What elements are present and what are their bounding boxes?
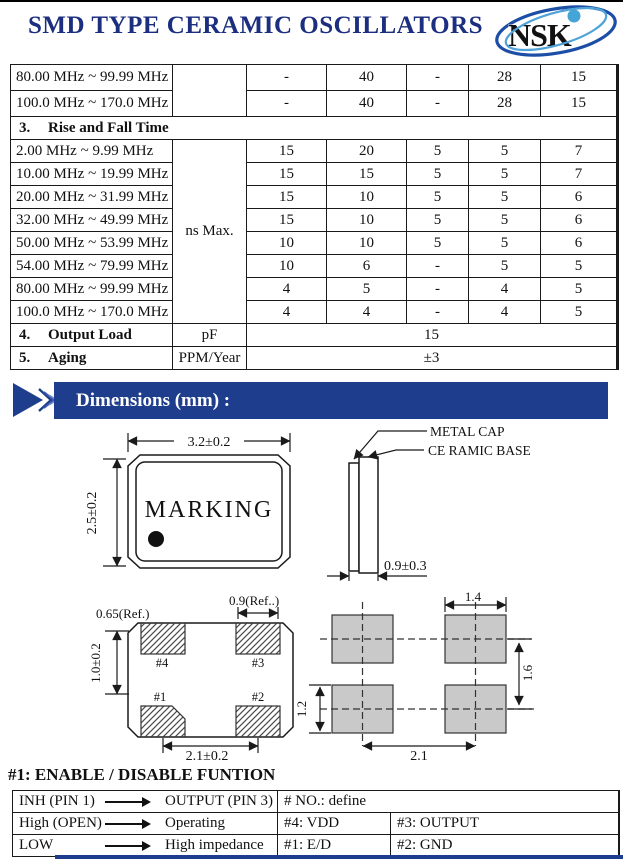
unit-cell-pf: pF bbox=[173, 324, 247, 347]
page-title: SMD TYPE CERAMIC OSCILLATORS bbox=[28, 12, 483, 40]
dim-land-vpitch-label: 1.6 bbox=[520, 664, 535, 681]
value-cell: 5 bbox=[469, 140, 541, 163]
value-cell: 4 bbox=[247, 301, 327, 324]
value-cell: - bbox=[247, 65, 327, 91]
dim-pad-width bbox=[238, 607, 278, 619]
value-cell: 15 bbox=[327, 163, 407, 186]
nsk-logo-text: NSK bbox=[508, 17, 572, 53]
value-cell: 40 bbox=[327, 91, 407, 117]
freq-label: 10.00 MHz ~ 19.99 MHz bbox=[11, 163, 173, 186]
value-cell: 5 bbox=[541, 301, 618, 324]
row-output-load: 4.Output Load bbox=[11, 324, 173, 347]
freq-label: 32.00 MHz ~ 49.99 MHz bbox=[11, 209, 173, 232]
value-cell: 10 bbox=[327, 209, 407, 232]
dim-land-height-label: 1.2 bbox=[294, 701, 309, 717]
value-cell: 5 bbox=[407, 186, 469, 209]
metal-cap-leader bbox=[354, 431, 427, 459]
pad-3 bbox=[236, 623, 280, 654]
freq-label: 50.00 MHz ~ 53.99 MHz bbox=[11, 232, 173, 255]
pad-3-label: #3 bbox=[252, 656, 265, 670]
value-cell: 4 bbox=[327, 301, 407, 324]
value-cell: 15 bbox=[247, 186, 327, 209]
dim-thickness-label: 0.9±0.3 bbox=[384, 559, 427, 574]
value-cell: 5 bbox=[541, 278, 618, 301]
flow-cell: INH (PIN 1) OUTPUT (PIN 3) bbox=[13, 791, 278, 813]
freq-label: 20.00 MHz ~ 31.99 MHz bbox=[11, 186, 173, 209]
freq-label: 100.0 MHz ~ 170.0 MHz bbox=[11, 91, 173, 117]
dimensions-banner-label: Dimensions (mm) : bbox=[54, 382, 608, 419]
unit-cell-ns-max: ns Max. bbox=[173, 140, 247, 324]
dim-body-height bbox=[103, 459, 126, 566]
value-cell: 15 bbox=[541, 65, 618, 91]
value-cell: 10 bbox=[327, 232, 407, 255]
pad-4 bbox=[141, 623, 185, 654]
section-header-rise-fall: 3.Rise and Fall Time bbox=[11, 117, 618, 140]
value-cell-merged: 15 bbox=[247, 324, 618, 347]
metal-cap-label: METAL CAP bbox=[430, 424, 505, 439]
flow-cell: LOW High impedance bbox=[13, 835, 278, 857]
land-pattern-pads bbox=[332, 615, 506, 733]
value-cell: - bbox=[247, 91, 327, 117]
right-arrow-icon bbox=[105, 801, 149, 803]
value-cell: 4 bbox=[469, 278, 541, 301]
section-number: 3. bbox=[19, 120, 48, 137]
section-title: Rise and Fall Time bbox=[48, 120, 169, 136]
value-cell: 7 bbox=[541, 163, 618, 186]
right-arrow-icon bbox=[105, 823, 149, 825]
value-cell: 5 bbox=[327, 278, 407, 301]
value-cell: 28 bbox=[469, 65, 541, 91]
pad-1 bbox=[141, 706, 185, 737]
flow-cell: High (OPEN) Operating bbox=[13, 813, 278, 835]
unit-cell-ppm: PPM/Year bbox=[173, 347, 247, 370]
datasheet-page: SMD TYPE CERAMIC OSCILLATORS NSK 80.00 M… bbox=[0, 0, 623, 859]
page-top-rule bbox=[0, 0, 623, 2]
value-cell: - bbox=[407, 301, 469, 324]
flow-to: High impedance bbox=[165, 837, 264, 854]
flow-from: High (OPEN) bbox=[19, 815, 105, 832]
value-cell: 5 bbox=[407, 140, 469, 163]
dim-land-height bbox=[309, 685, 331, 733]
spec-table: 80.00 MHz ~ 99.99 MHz - 40 - 28 15 100.0… bbox=[10, 64, 619, 370]
value-cell: 6 bbox=[327, 255, 407, 278]
value-cell: 6 bbox=[541, 209, 618, 232]
value-cell: 10 bbox=[247, 255, 327, 278]
value-cell: 4 bbox=[469, 301, 541, 324]
value-cell: 5 bbox=[469, 255, 541, 278]
dim-pad-row-label: 1.0±0.2 bbox=[88, 643, 103, 683]
dim-body-width-label: 3.2±0.2 bbox=[188, 435, 231, 450]
row-aging: 5.Aging bbox=[11, 347, 173, 370]
pin-cell: #4: VDD bbox=[278, 813, 391, 835]
pad-2 bbox=[236, 706, 280, 737]
value-cell: 28 bbox=[469, 91, 541, 117]
footer-rule bbox=[55, 855, 623, 859]
pin-cell: #1: E/D bbox=[278, 835, 391, 857]
dim-land-hpitch-label: 2.1 bbox=[410, 749, 428, 764]
value-cell: 20 bbox=[327, 140, 407, 163]
freq-label: 80.00 MHz ~ 99.99 MHz bbox=[11, 278, 173, 301]
freq-label: 100.0 MHz ~ 170.0 MHz bbox=[11, 301, 173, 324]
row-title: Output Load bbox=[48, 327, 132, 343]
dim-body-height-label: 2.5±0.2 bbox=[85, 492, 100, 535]
flow-to: Operating bbox=[165, 815, 225, 832]
row-number: 5. bbox=[19, 350, 48, 367]
value-cell: 5 bbox=[469, 232, 541, 255]
value-cell: 6 bbox=[541, 186, 618, 209]
value-cell: - bbox=[407, 65, 469, 91]
nsk-logo: NSK bbox=[492, 3, 620, 61]
value-cell: 15 bbox=[247, 209, 327, 232]
value-cell: 15 bbox=[541, 91, 618, 117]
dim-land-width-label: 1.4 bbox=[465, 589, 482, 604]
package-side-view bbox=[349, 457, 378, 573]
value-cell: 5 bbox=[469, 163, 541, 186]
value-cell: 4 bbox=[247, 278, 327, 301]
pin1-dot bbox=[148, 531, 164, 547]
row-title: Aging bbox=[48, 350, 86, 366]
flow-to: OUTPUT (PIN 3) bbox=[165, 793, 273, 810]
row-number: 4. bbox=[19, 327, 48, 344]
pin-cell: #3: OUTPUT bbox=[391, 813, 619, 835]
value-cell: 5 bbox=[407, 163, 469, 186]
pin-define-cell: # NO.: define bbox=[278, 791, 619, 813]
value-cell: 15 bbox=[247, 163, 327, 186]
freq-label: 80.00 MHz ~ 99.99 MHz bbox=[11, 65, 173, 91]
pad-offset-ref-label: 0.65(Ref.) bbox=[96, 606, 149, 621]
value-cell: - bbox=[407, 91, 469, 117]
value-cell: 5 bbox=[469, 186, 541, 209]
dimension-drawings: MARKING 3.2±0.2 2.5±0.2 METAL CAP CE RAM… bbox=[0, 420, 623, 764]
value-cell: 6 bbox=[541, 232, 618, 255]
value-cell: 10 bbox=[327, 186, 407, 209]
value-cell: 15 bbox=[247, 140, 327, 163]
marking-label: MARKING bbox=[145, 497, 274, 523]
footprint-pads bbox=[141, 623, 280, 737]
dim-pad-pitch-label: 2.1±0.2 bbox=[186, 749, 229, 764]
pad-4-label: #4 bbox=[156, 656, 169, 670]
value-cell: 7 bbox=[541, 140, 618, 163]
flow-from: LOW bbox=[19, 837, 105, 854]
pad-1-label: #1 bbox=[154, 690, 167, 704]
value-cell: 5 bbox=[407, 209, 469, 232]
pin-cell: #2: GND bbox=[391, 835, 619, 857]
value-cell: 40 bbox=[327, 65, 407, 91]
value-cell: 5 bbox=[541, 255, 618, 278]
value-cell: 5 bbox=[407, 232, 469, 255]
freq-label: 54.00 MHz ~ 79.99 MHz bbox=[11, 255, 173, 278]
right-arrow-icon bbox=[105, 845, 149, 847]
value-cell: - bbox=[407, 278, 469, 301]
unit-cell-empty bbox=[173, 65, 247, 117]
pad-width-ref-label: 0.9(Ref..) bbox=[229, 593, 279, 608]
dim-pad-row bbox=[105, 631, 129, 694]
ceramic-base-leader bbox=[368, 450, 424, 457]
enable-disable-table: INH (PIN 1) OUTPUT (PIN 3) # NO.: define… bbox=[12, 790, 620, 857]
dimensions-banner: Dimensions (mm) : bbox=[54, 382, 608, 419]
value-cell: 10 bbox=[247, 232, 327, 255]
pad-2-label: #2 bbox=[252, 690, 265, 704]
ceramic-base-label: CE RAMIC BASE bbox=[428, 443, 531, 458]
value-cell-merged: ±3 bbox=[247, 347, 618, 370]
freq-label: 2.00 MHz ~ 9.99 MHz bbox=[11, 140, 173, 163]
value-cell: 5 bbox=[469, 209, 541, 232]
enable-disable-title: #1: ENABLE / DISABLE FUNTION bbox=[8, 765, 275, 785]
flow-from: INH (PIN 1) bbox=[19, 793, 105, 810]
nsk-logo-dot bbox=[568, 10, 581, 23]
value-cell: - bbox=[407, 255, 469, 278]
